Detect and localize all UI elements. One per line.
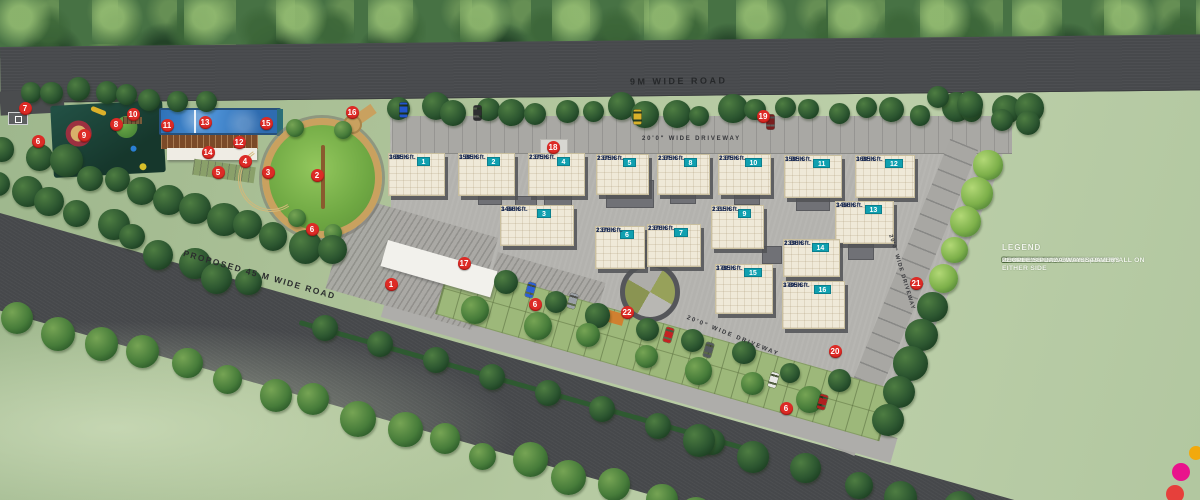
road-edge-tree: [41, 317, 75, 351]
left-band-tree-2: [63, 200, 90, 227]
building-number-badge: 11: [813, 159, 830, 168]
median-tree: [312, 315, 338, 341]
building-type-label: 2 BHK: [648, 225, 668, 233]
amenity-top-tree: [40, 82, 62, 104]
top-driveway-tree: [829, 103, 850, 124]
amenity-top-tree: [21, 82, 42, 103]
building-type-label: 3 BHK: [856, 156, 876, 164]
median-tree: [367, 331, 393, 357]
top-driveway-tree: [910, 105, 931, 126]
map-marker-14: 14: [202, 146, 215, 159]
road-edge-tree: [430, 423, 461, 454]
map-marker-9: 9: [78, 129, 91, 142]
road-edge-tree-2: [943, 491, 977, 500]
roof-core: [762, 246, 782, 264]
map-marker-7: 7: [19, 102, 32, 115]
road-edge-tree: [513, 442, 548, 477]
road-edge-tree: [213, 365, 242, 394]
top-driveway-tree: [689, 106, 709, 126]
map-marker-18: 18: [547, 141, 560, 154]
map-marker-22: 22: [621, 306, 634, 319]
road-edge-tree: [388, 412, 422, 446]
left-band-tree: [233, 210, 262, 239]
building-number-badge: 16: [814, 285, 832, 294]
left-band-tree: [127, 177, 155, 205]
building-block-14: 141330 Sft.2 BHK: [783, 239, 840, 277]
map-marker-6: 6: [306, 223, 319, 236]
legend-item-text: PEOPLE'S PLAZA: [1002, 257, 1063, 265]
play-dot-yellow: [139, 163, 146, 170]
top-driveway-tree: [775, 97, 796, 118]
building-block-1: 11685 Sft.3 BHK: [388, 153, 445, 196]
map-marker-12: 12: [233, 136, 246, 149]
map-marker-21: 21: [910, 277, 923, 290]
parking-tree-2: [741, 372, 763, 394]
building-block-4: 41375 Sft.2 BHK: [528, 153, 585, 196]
building-block-13: 131460 Sft.3 BHK: [835, 201, 894, 244]
ramp-edge-bush: [950, 206, 981, 237]
top-right-tree: [1016, 111, 1041, 136]
amenity-top-tree: [167, 91, 188, 112]
map-marker-6: 6: [780, 402, 793, 415]
building-type-label: 3 BHK: [389, 154, 409, 162]
building-type-label: 2 BHK: [784, 240, 804, 248]
ramp-edge-bush: [929, 264, 958, 293]
top-driveway-tree: [663, 100, 691, 128]
map-marker-20: 20: [829, 345, 842, 358]
map-marker-2: 2: [311, 169, 324, 182]
top-right-tree: [991, 109, 1013, 131]
legend-panel: LEGEND 1.ENTRY / EXIT2.OPEN LAWN3.AMPHIT…: [1002, 243, 1170, 257]
parked-car: [634, 110, 642, 125]
ramp-edge-bush: [961, 177, 994, 210]
road-edge-tree-2: [790, 453, 820, 483]
kids-pool-divider: [194, 110, 196, 133]
building-type-label: 2 BHK: [658, 155, 678, 163]
road-edge-tree: [260, 379, 292, 411]
building-block-8: 81375 Sft.2 BHK: [657, 154, 710, 195]
building-type-label: 3 BHK: [785, 156, 805, 164]
map-marker-5: 5: [212, 166, 225, 179]
left-band-tree: [0, 137, 14, 162]
map-marker-15: 15: [260, 117, 273, 130]
parking-tree-2: [635, 345, 658, 368]
building-type-label: 3 BHK: [459, 154, 479, 162]
top-driveway-tree: [524, 103, 546, 125]
road-edge-tree: [551, 460, 586, 495]
road-edge-tree: [126, 335, 159, 368]
map-marker-13: 13: [199, 116, 212, 129]
building-number-badge: 4: [557, 157, 571, 166]
building-type-label: 3 BHK: [716, 265, 736, 273]
road-edge-tree: [172, 348, 202, 378]
parked-car: [400, 103, 408, 118]
lawn-edge-tree: [334, 121, 352, 139]
ramp-edge-bush: [941, 237, 967, 263]
parking-tree: [681, 329, 704, 352]
map-marker-19: 19: [757, 110, 770, 123]
label-driveway-top: 20'0" WIDE DRIVEWAY: [642, 136, 741, 142]
top-driveway-tree: [498, 99, 525, 126]
building-number-badge: 10: [745, 158, 763, 167]
lawn-edge-tree: [288, 209, 306, 227]
parking-tree-2: [524, 312, 552, 340]
building-type-label: 3 BHK: [783, 282, 803, 290]
road-edge-tree: [340, 401, 376, 437]
building-type-label: 2 BHK: [719, 155, 739, 163]
left-band-tree-2: [119, 224, 144, 249]
road-edge-tree-2: [683, 424, 716, 457]
parked-car: [474, 106, 482, 121]
building-number-badge: 1: [417, 157, 431, 166]
median-tree: [645, 413, 671, 439]
site-plan-canvas: 9M WIDE ROAD PROPOSED 45 M WIDE ROAD 20'…: [0, 0, 1200, 500]
roof-core: [848, 244, 874, 260]
building-type-label: 2 BHK: [597, 155, 617, 163]
building-block-15: 151785 Sft.3 BHK: [715, 264, 773, 314]
top-driveway-tree: [440, 100, 466, 126]
building-block-2: 21585 Sft.3 BHK: [458, 153, 515, 196]
building-number-badge: 2: [487, 157, 501, 166]
ramp-edge-bush: [917, 292, 947, 322]
building-number-badge: 5: [623, 158, 637, 167]
left-band-tree: [77, 166, 102, 191]
building-block-6: 61370 Sft.2 BHK: [595, 226, 645, 269]
building-number-badge: 9: [738, 209, 752, 218]
play-dot-blue: [130, 146, 136, 152]
road-edge-tree: [646, 484, 678, 500]
building-type-label: 2 BHK: [712, 206, 732, 214]
map-marker-10: 10: [127, 108, 140, 121]
building-number-badge: 14: [812, 243, 830, 252]
parking-tree-2: [576, 323, 600, 347]
road-edge-tree: [1, 302, 33, 334]
building-number-badge: 12: [885, 159, 903, 168]
map-marker-16: 16: [346, 106, 359, 119]
map-marker-4: 4: [239, 155, 252, 168]
median-tree: [589, 396, 615, 422]
logo-dot-yellow: [1189, 446, 1200, 460]
map-marker-3: 3: [262, 166, 275, 179]
map-marker-8: 8: [110, 118, 123, 131]
ramp-edge-bush: [883, 376, 915, 408]
ramp-edge-bush: [973, 150, 1002, 179]
road-edge-tree-2: [845, 472, 872, 499]
building-block-11: 111585 Sft.3 BHK: [784, 155, 842, 198]
top-driveway-tree: [556, 100, 579, 123]
logo-dot-magenta: [1172, 463, 1190, 481]
building-number-badge: 7: [674, 228, 688, 237]
road-edge-tree-2: [884, 481, 917, 500]
building-block-16: 161705 Sft.3 BHK: [782, 281, 845, 329]
building-block-12: 121685 Sft.3 BHK: [855, 155, 915, 198]
roof-core: [796, 196, 830, 211]
map-marker-17: 17: [458, 257, 471, 270]
road-edge-tree: [598, 468, 631, 500]
road-edge-tree-2: [737, 441, 768, 472]
building-number-badge: 8: [684, 158, 698, 167]
building-number-badge: 3: [537, 209, 551, 218]
legend-title: LEGEND: [1002, 243, 1170, 252]
parking-tree: [828, 369, 851, 392]
map-marker-6: 6: [32, 135, 45, 148]
parking-tree-2: [685, 357, 713, 385]
left-band-tree: [26, 144, 53, 171]
building-type-label: 2 BHK: [596, 227, 616, 235]
building-number-badge: 13: [865, 205, 883, 214]
logo-dot-red: [1166, 485, 1184, 500]
ramp-edge-bush: [872, 404, 904, 436]
building-block-9: 91315 Sft.2 BHK: [711, 205, 764, 249]
building-type-label: 3 BHK: [836, 202, 856, 210]
left-band-tree: [259, 222, 287, 250]
map-marker-1: 1: [385, 278, 398, 291]
road-edge-tree: [85, 327, 119, 361]
building-block-10: 101375 Sft.2 BHK: [718, 154, 771, 195]
road-edge-tree: [297, 383, 329, 415]
left-band-tree-2: [34, 187, 63, 216]
top-right-tree: [957, 91, 983, 117]
building-block-3: 31460 Sft.3 BHK: [500, 205, 574, 246]
median-tree: [479, 364, 505, 390]
amenity-top-tree: [196, 91, 217, 112]
top-driveway-tree: [798, 99, 818, 119]
map-marker-6: 6: [529, 298, 542, 311]
amenity-top-tree: [67, 77, 90, 100]
left-band-tree-2: [143, 240, 173, 270]
left-band-tree-2: [0, 172, 10, 197]
building-type-label: 2 BHK: [529, 154, 549, 162]
median-tree: [423, 347, 449, 373]
lawn-edge-tree: [286, 119, 304, 137]
top-driveway-tree: [583, 101, 604, 122]
building-type-label: 3 BHK: [501, 206, 521, 214]
building-number-badge: 15: [744, 268, 762, 277]
top-driveway-tree: [856, 97, 877, 118]
label-9m-wide-road: 9M WIDE ROAD: [630, 75, 728, 86]
building-block-7: 71370 Sft.2 BHK: [647, 224, 701, 267]
median-tree: [535, 380, 561, 406]
building-block-5: 51375 Sft.2 BHK: [596, 154, 649, 195]
play-slide: [90, 106, 107, 117]
map-marker-11: 11: [161, 119, 174, 132]
road-edge-tree: [469, 443, 496, 470]
left-band-tree: [179, 193, 210, 224]
